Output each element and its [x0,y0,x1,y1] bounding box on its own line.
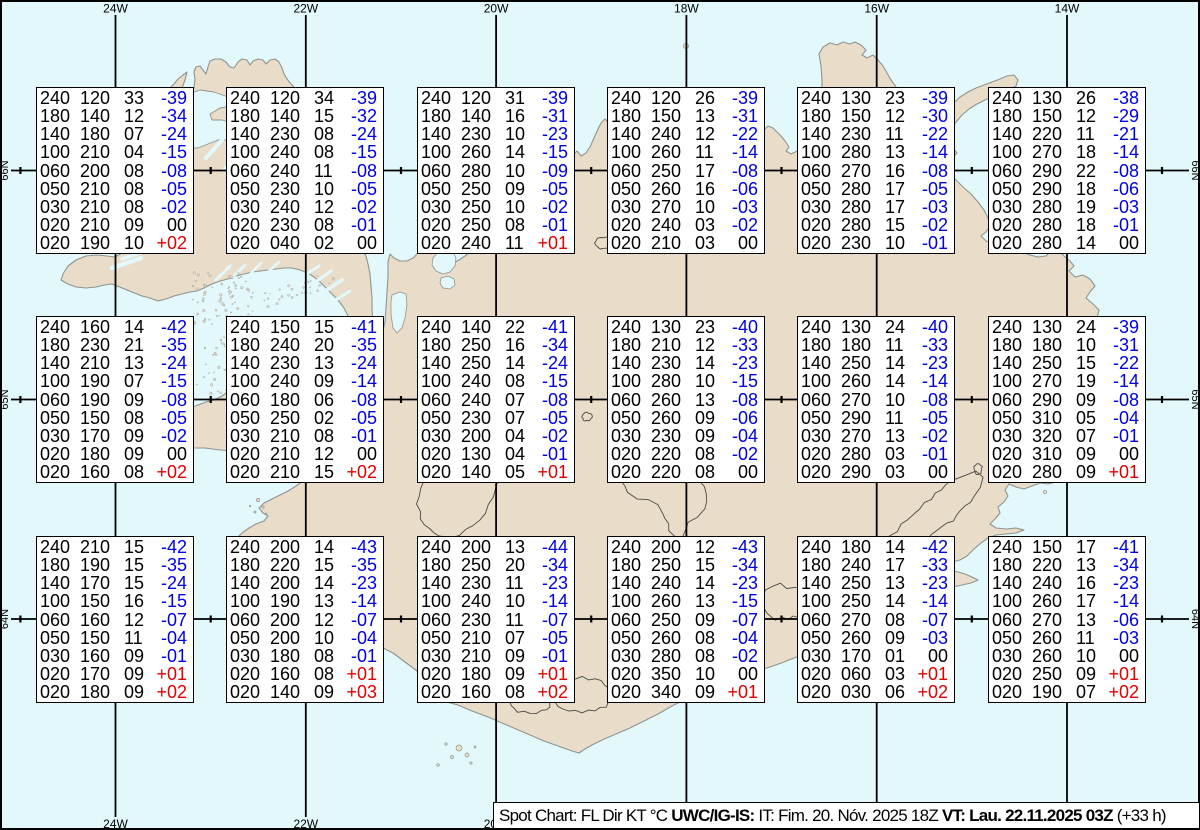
svg-text:24W: 24W [103,2,128,16]
svg-text:14W: 14W [1055,2,1080,16]
svg-text:18W: 18W [674,2,699,16]
svg-text:16W: 16W [864,2,889,16]
svg-text:20W: 20W [484,2,509,16]
svg-text:22W: 22W [293,2,318,16]
